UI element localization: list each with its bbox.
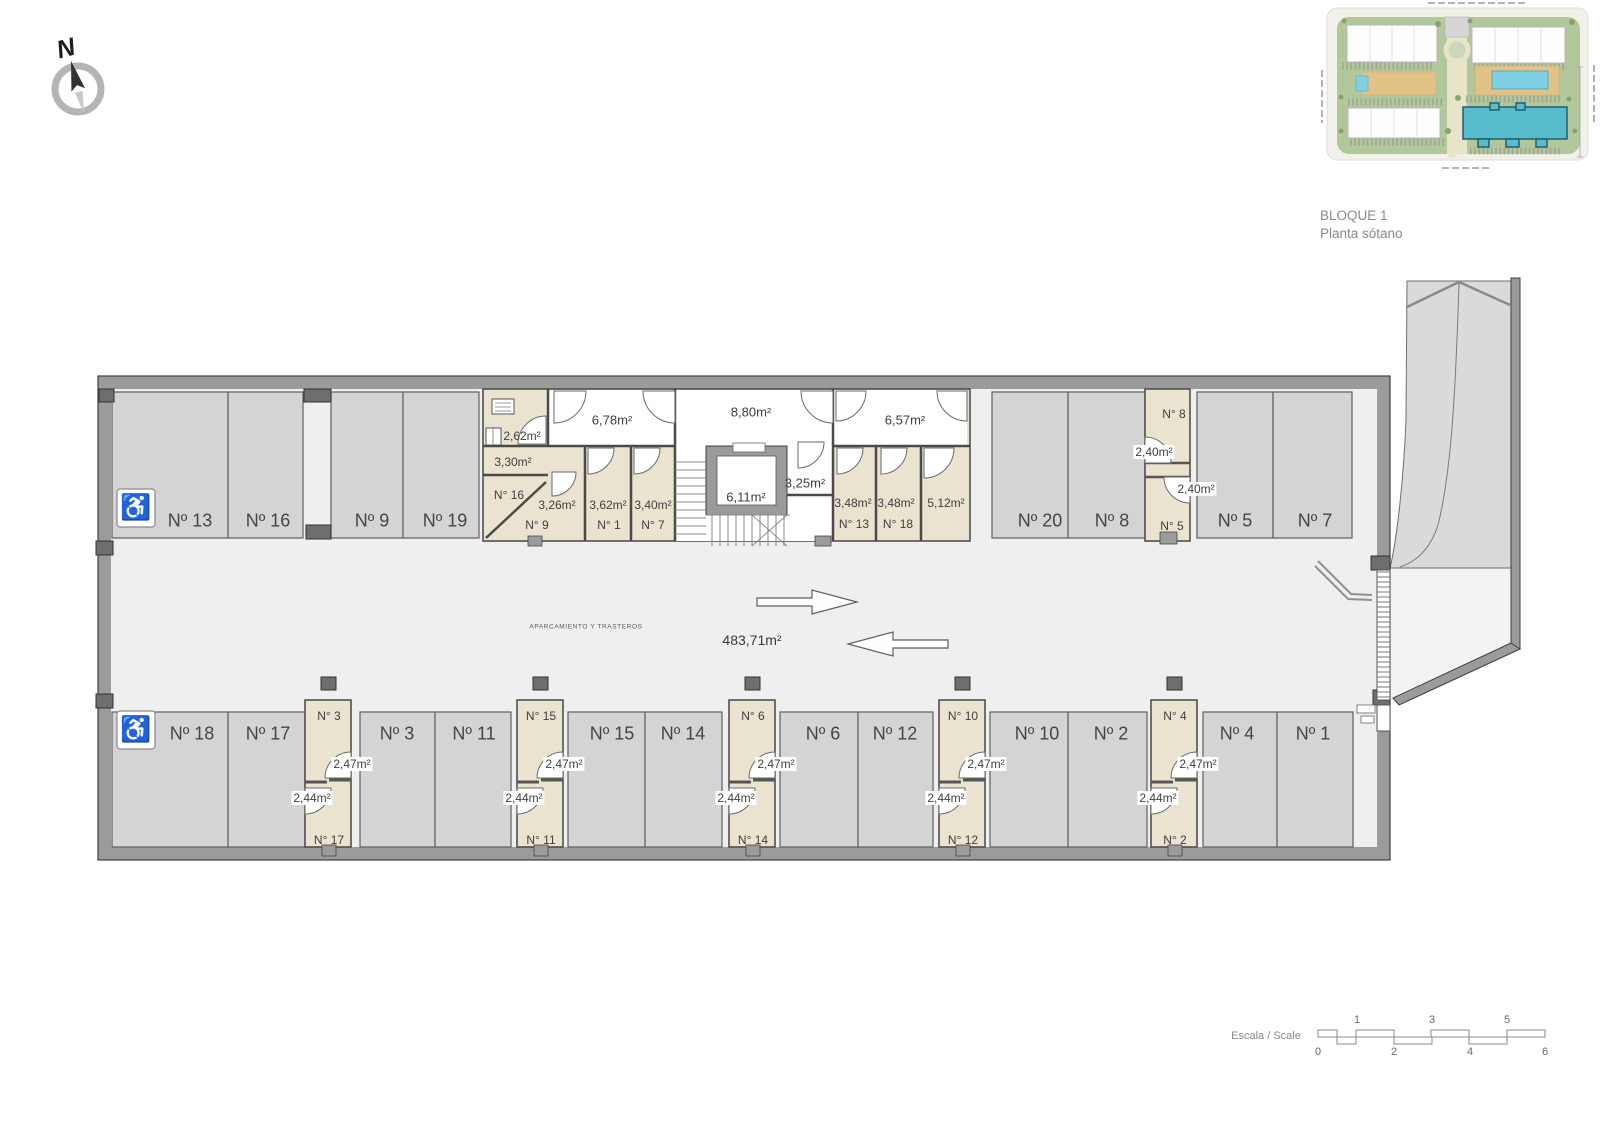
aisle-area-label: 483,71m² (722, 632, 781, 648)
parking-space-label: Nº 11 (452, 724, 495, 745)
lift-area-label: 6,11m² (726, 490, 766, 505)
plan-canvas (0, 0, 1600, 1132)
storage-number-label: N° 10 (948, 709, 978, 723)
parking-space-label: Nº 18 (170, 724, 215, 745)
storage-number-label: N° 16 (494, 488, 524, 502)
parking-space-label: Nº 19 (423, 511, 468, 532)
storage-area-label: 3,48m² (834, 496, 871, 510)
storage-number-label: N° 5 (1160, 519, 1183, 533)
hall-area-label: 6,57m² (885, 413, 925, 428)
scale-tick: 6 (1542, 1046, 1548, 1058)
storage-number-label: N° 3 (317, 709, 340, 723)
parking-space-label: Nº 4 (1220, 724, 1255, 745)
parking-space-label: Nº 16 (246, 511, 291, 532)
wheelchair-icon: ♿ (120, 494, 151, 523)
scale-label: Escala / Scale (1231, 1030, 1301, 1042)
parking-space-label: Nº 20 (1018, 511, 1063, 532)
storage-area-label: 2,47m² (331, 757, 372, 771)
storage-number-label: N° 14 (738, 833, 768, 847)
parking-space-label: Nº 13 (168, 511, 213, 532)
storage-area-label: 3,48m² (877, 496, 914, 510)
parking-space-label: Nº 10 (1015, 724, 1060, 745)
storage-number-label: N° 2 (1163, 833, 1186, 847)
parking-space-label: Nº 6 (806, 724, 841, 745)
block-title: BLOQUE 1 (1320, 208, 1388, 223)
compass-icon (55, 59, 101, 115)
wheelchair-icon: ♿ (120, 716, 151, 745)
storage-area-label: 2,44m² (1137, 791, 1178, 805)
storage-area-label: 2,47m² (1177, 757, 1218, 771)
parking-space-label: Nº 14 (661, 724, 706, 745)
storage-area-label: 2,44m² (925, 791, 966, 805)
storage-number-label: N° 9 (525, 518, 548, 532)
parking-space-label: Nº 12 (873, 724, 918, 745)
storage-area-label: 2,47m² (965, 757, 1006, 771)
storage-number-label: N° 4 (1163, 709, 1186, 723)
storage-area-label: 3,62m² (589, 498, 626, 512)
storage-area-label: 2,40m² (1133, 445, 1174, 459)
floor-title: Planta sótano (1320, 226, 1403, 241)
storage-number-label: N° 13 (839, 517, 869, 531)
storage-number-label: N° 12 (948, 833, 978, 847)
scale-tick: 3 (1429, 1014, 1435, 1026)
storage-area-label: 2,44m² (291, 791, 332, 805)
zone-label: APARCAMIENTO Y TRASTEROS (529, 624, 642, 631)
scale-tick: 5 (1504, 1014, 1510, 1026)
parking-space-label: Nº 3 (380, 724, 415, 745)
parking-space-label: Nº 5 (1218, 511, 1253, 532)
scale-tick: 0 (1315, 1046, 1321, 1058)
storage-number-label: N° 8 (1162, 407, 1185, 421)
storage-area-label: 2,47m² (755, 757, 796, 771)
parking-space-label: Nº 9 (355, 511, 390, 532)
storage-area-label: 2,40m² (1175, 482, 1216, 496)
storage-area-label: 2,62m² (503, 429, 540, 443)
room-area-label: 3,25m² (785, 476, 825, 491)
scale-tick: 1 (1354, 1014, 1360, 1026)
scale-bar (1318, 1030, 1545, 1044)
parking-space-label: Nº 1 (1296, 724, 1331, 745)
storage-number-label: N° 7 (641, 518, 664, 532)
storage-area-label: 3,30m² (494, 455, 531, 469)
parking-space-label: Nº 8 (1095, 511, 1130, 532)
hall-area-label: 8,80m² (731, 405, 771, 420)
storage-number-label: N° 11 (526, 833, 555, 847)
storage-number-label: N° 15 (526, 709, 556, 723)
storage-area-label: 3,26m² (538, 498, 575, 512)
storage-number-label: N° 1 (597, 518, 620, 532)
scale-tick: 4 (1467, 1046, 1473, 1058)
parking-space-label: Nº 7 (1298, 511, 1333, 532)
storage-area-label: 5,12m² (927, 496, 964, 510)
storage-area-label: 2,47m² (543, 757, 584, 771)
parking-space-label: Nº 15 (590, 724, 635, 745)
site-plan-thumbnail (1322, 3, 1594, 168)
vehicle-gate-grille (1377, 570, 1390, 700)
storage-area-label: 3,40m² (634, 498, 671, 512)
storage-number-label: N° 6 (741, 709, 764, 723)
parking-space-label: Nº 17 (246, 724, 291, 745)
storage-number-label: N° 17 (314, 833, 344, 847)
hall-area-label: 6,78m² (592, 413, 632, 428)
scale-tick: 2 (1391, 1046, 1397, 1058)
parking-space-label: Nº 2 (1094, 724, 1129, 745)
storage-area-label: 2,44m² (503, 791, 544, 805)
storage-area-label: 2,44m² (715, 791, 756, 805)
storage-number-label: N° 18 (883, 517, 913, 531)
entrance-ramp (1390, 278, 1520, 705)
floor-plan-page: BLOQUE 1 Planta sótano N ♿ ♿ Nº 13 Nº 16… (0, 0, 1600, 1132)
